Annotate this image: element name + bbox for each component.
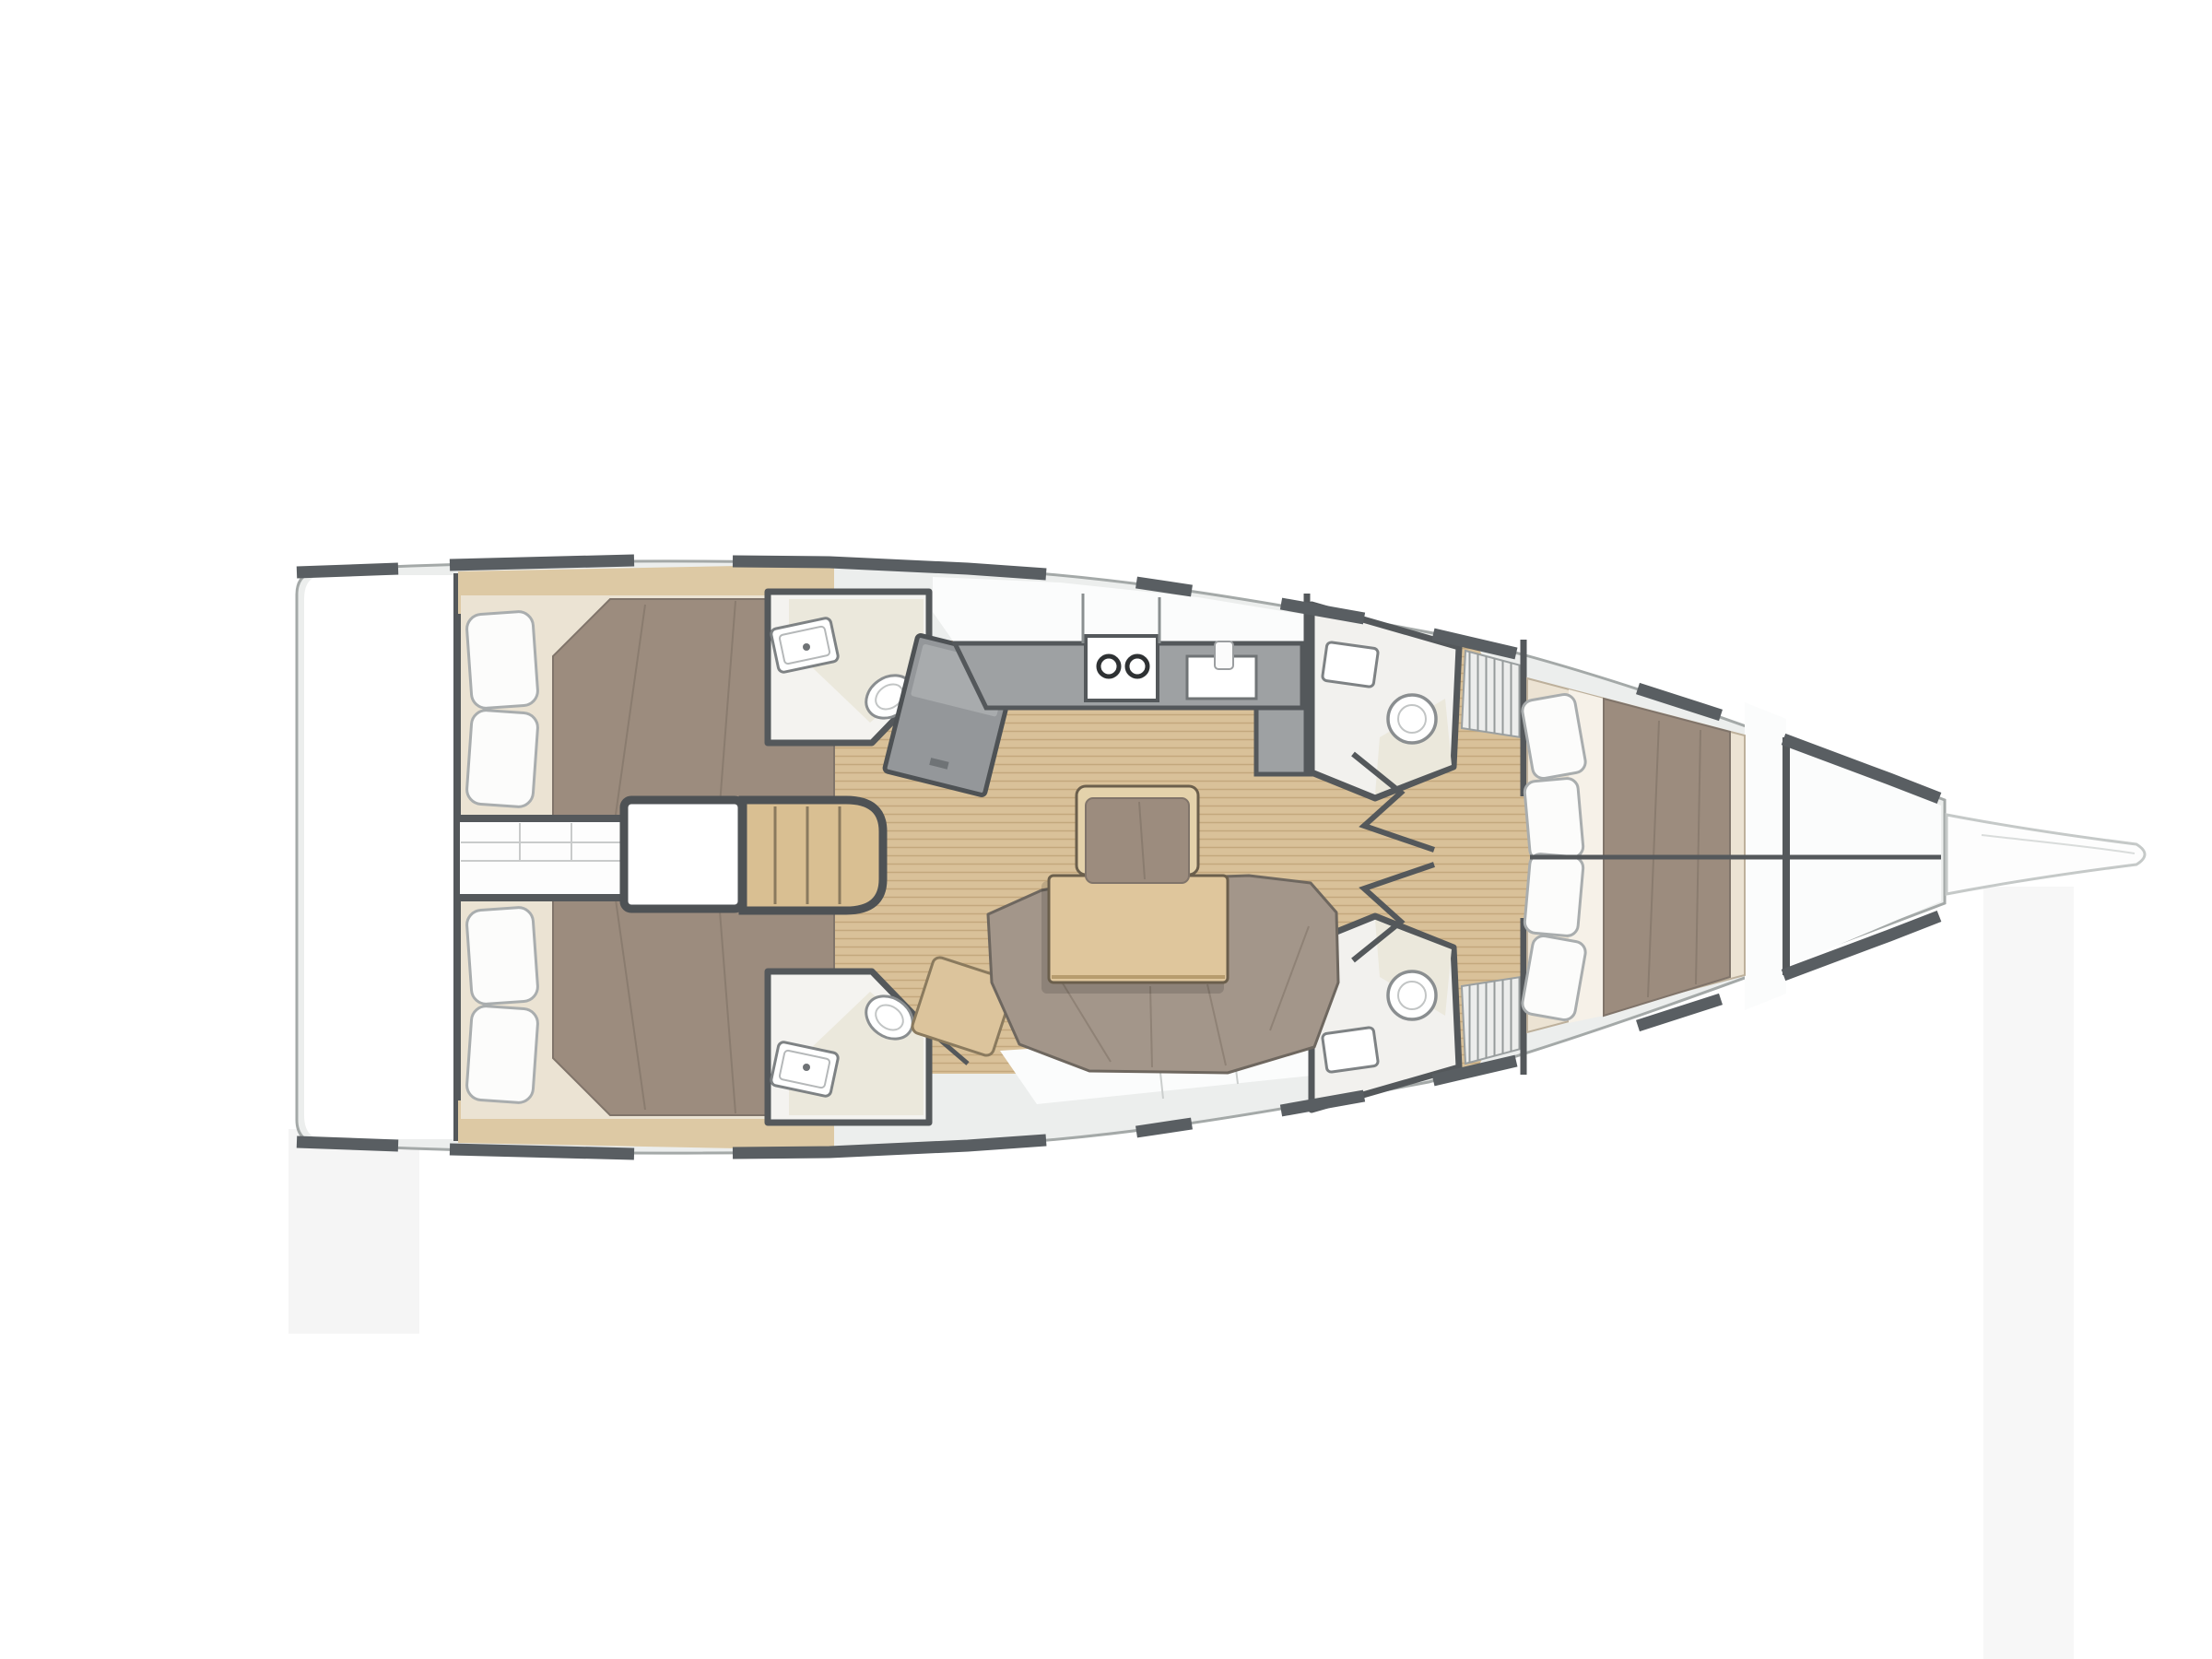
- deck-hatch-port-1: [297, 569, 398, 572]
- aft-cabin-port-pillow-2: [466, 710, 539, 808]
- head-fwd-stbd-sink: [1322, 1027, 1378, 1072]
- head-aft-port-faucet: [803, 643, 810, 651]
- watermark-band-bow: [1983, 887, 2074, 1659]
- fwd-pillow-2: [1524, 778, 1583, 862]
- stove-burner-2: [1127, 656, 1147, 677]
- fwd-pillow-3: [1524, 853, 1583, 937]
- deck-hatch-port-4: [1136, 582, 1192, 591]
- head-aft-stbd-faucet: [803, 1064, 810, 1071]
- deck-hatch-stbd-2: [450, 1149, 634, 1154]
- yacht-floor-plan-page: [0, 0, 2212, 1659]
- transom-swim-platform: [304, 575, 458, 1139]
- center-bench-cushion: [1086, 798, 1189, 883]
- bowsprit: [1947, 815, 2145, 894]
- galley-peninsula: [1256, 708, 1312, 774]
- companionway-stairs: [743, 800, 883, 911]
- head-fwd-port-toilet: [1388, 695, 1436, 743]
- galley-faucet: [1215, 641, 1233, 669]
- engine-box: [624, 800, 742, 909]
- head-fwd-port-sink: [1322, 641, 1378, 687]
- watermark-band-stern: [288, 1129, 419, 1334]
- corridor-floor: [460, 822, 624, 896]
- aft-cabin-stbd-pillow-2: [466, 907, 539, 1006]
- deck-hatch-stbd-1: [297, 1142, 398, 1146]
- locker-fwd-port-slats: [1462, 651, 1521, 737]
- head-fwd-stbd-toilet: [1388, 971, 1436, 1019]
- aft-cabin-port-pillow-1: [466, 611, 539, 710]
- deck-hatch-stbd-4: [1136, 1124, 1192, 1132]
- aft-cabin-stbd-pillow-1: [466, 1006, 539, 1104]
- salon-table: [1049, 876, 1228, 982]
- plan-shapes-layer: [288, 560, 2145, 1659]
- yacht-floor-plan: [0, 0, 2212, 1659]
- deck-hatch-port-2: [450, 560, 634, 565]
- locker-fwd-stbd-slats: [1462, 977, 1521, 1064]
- stove-burner-1: [1099, 656, 1119, 677]
